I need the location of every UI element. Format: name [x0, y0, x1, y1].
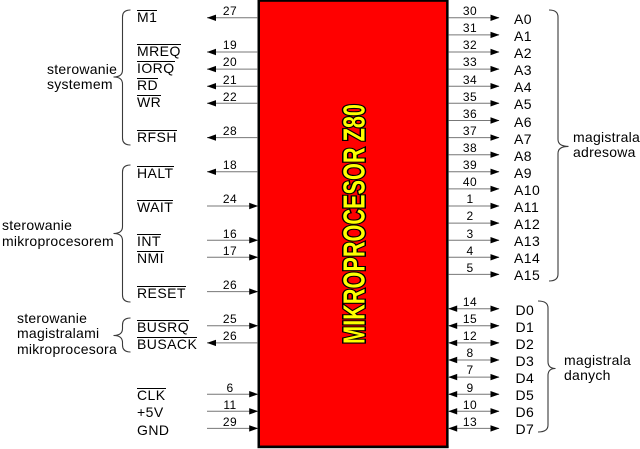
svg-text:MIKROPROCESOR Z80: MIKROPROCESOR Z80 — [337, 104, 372, 344]
